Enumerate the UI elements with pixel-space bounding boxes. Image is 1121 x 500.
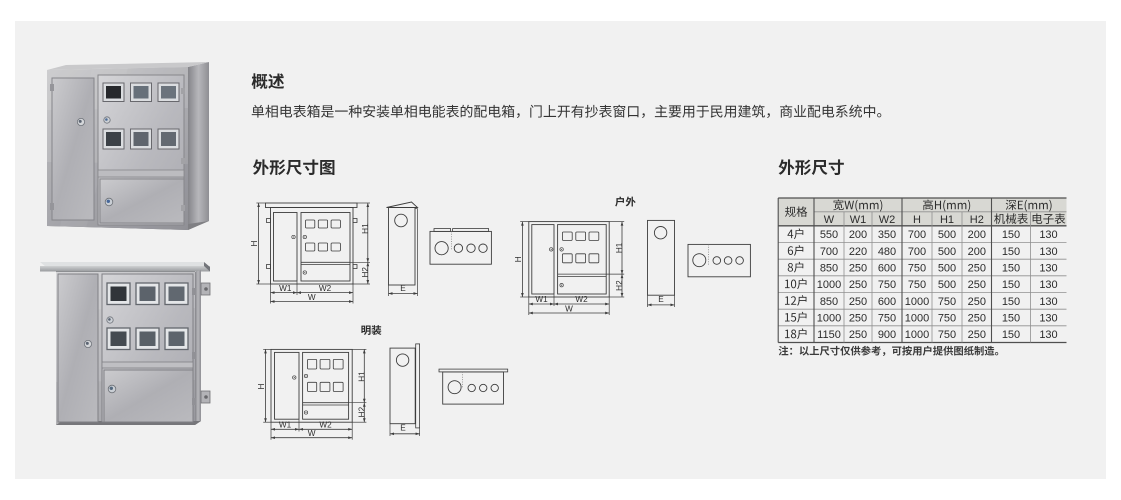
svg-text:250: 250	[968, 263, 986, 275]
svg-text:480: 480	[878, 246, 896, 258]
svg-text:E: E	[400, 284, 406, 293]
svg-text:200: 200	[968, 229, 986, 241]
svg-text:W2: W2	[575, 295, 588, 304]
svg-text:700: 700	[820, 246, 838, 258]
svg-text:750: 750	[878, 313, 896, 325]
svg-text:H1: H1	[361, 223, 370, 234]
svg-text:150: 150	[1002, 329, 1020, 341]
svg-text:130: 130	[1039, 229, 1057, 241]
svg-text:900: 900	[878, 329, 896, 341]
svg-text:E: E	[658, 295, 664, 304]
svg-text:750: 750	[938, 313, 956, 325]
svg-text:H2: H2	[615, 280, 624, 291]
svg-text:W: W	[824, 214, 835, 226]
svg-text:150: 150	[1002, 296, 1020, 308]
svg-text:130: 130	[1039, 329, 1057, 341]
svg-text:250: 250	[849, 329, 867, 341]
svg-text:W2: W2	[319, 421, 332, 430]
svg-text:150: 150	[1002, 229, 1020, 241]
svg-text:1000: 1000	[817, 313, 841, 325]
svg-text:600: 600	[878, 296, 896, 308]
svg-text:H2: H2	[358, 406, 367, 417]
svg-text:750: 750	[938, 329, 956, 341]
svg-text:350: 350	[878, 229, 896, 241]
svg-text:750: 750	[908, 279, 926, 291]
svg-text:750: 750	[878, 279, 896, 291]
svg-text:750: 750	[908, 263, 926, 275]
svg-text:H: H	[514, 256, 523, 262]
svg-text:750: 750	[938, 296, 956, 308]
svg-text:500: 500	[938, 279, 956, 291]
svg-text:W: W	[308, 293, 316, 302]
svg-text:250: 250	[968, 329, 986, 341]
svg-text:250: 250	[849, 313, 867, 325]
svg-text:150: 150	[1002, 313, 1020, 325]
svg-text:150: 150	[1002, 279, 1020, 291]
svg-text:200: 200	[849, 229, 867, 241]
svg-text:E: E	[400, 424, 406, 433]
svg-text:130: 130	[1039, 263, 1057, 275]
svg-text:1150: 1150	[817, 329, 841, 341]
svg-text:1000: 1000	[817, 279, 841, 291]
svg-text:H: H	[257, 383, 266, 389]
svg-text:130: 130	[1039, 313, 1057, 325]
svg-text:850: 850	[820, 296, 838, 308]
svg-text:850: 850	[820, 263, 838, 275]
svg-text:W2: W2	[319, 284, 332, 293]
svg-text:W1: W1	[279, 421, 292, 430]
svg-text:1000: 1000	[905, 296, 929, 308]
svg-text:H1: H1	[615, 242, 624, 253]
svg-text:W1: W1	[850, 214, 867, 226]
svg-text:H2: H2	[970, 214, 984, 226]
svg-text:700: 700	[908, 246, 926, 258]
svg-text:130: 130	[1039, 296, 1057, 308]
svg-text:250: 250	[968, 313, 986, 325]
svg-text:500: 500	[938, 229, 956, 241]
svg-text:250: 250	[849, 279, 867, 291]
svg-text:250: 250	[849, 296, 867, 308]
svg-text:1000: 1000	[905, 313, 929, 325]
svg-text:H: H	[913, 214, 921, 226]
svg-text:250: 250	[968, 279, 986, 291]
svg-text:250: 250	[849, 263, 867, 275]
svg-text:600: 600	[878, 263, 896, 275]
svg-text:700: 700	[908, 229, 926, 241]
svg-text:H: H	[250, 240, 259, 246]
svg-text:200: 200	[968, 246, 986, 258]
svg-text:500: 500	[938, 263, 956, 275]
svg-text:130: 130	[1039, 279, 1057, 291]
svg-text:220: 220	[849, 246, 867, 258]
svg-text:130: 130	[1039, 246, 1057, 258]
svg-text:1000: 1000	[905, 329, 929, 341]
svg-text:500: 500	[938, 246, 956, 258]
svg-text:W1: W1	[535, 295, 548, 304]
svg-text:W2: W2	[879, 214, 896, 226]
svg-text:W: W	[308, 429, 316, 438]
svg-text:H2: H2	[361, 267, 370, 278]
svg-text:H1: H1	[940, 214, 954, 226]
svg-text:250: 250	[968, 296, 986, 308]
svg-text:150: 150	[1002, 246, 1020, 258]
svg-text:550: 550	[820, 229, 838, 241]
svg-text:150: 150	[1002, 263, 1020, 275]
svg-text:W1: W1	[279, 284, 292, 293]
svg-text:W: W	[565, 304, 573, 313]
svg-text:H1: H1	[358, 371, 367, 382]
